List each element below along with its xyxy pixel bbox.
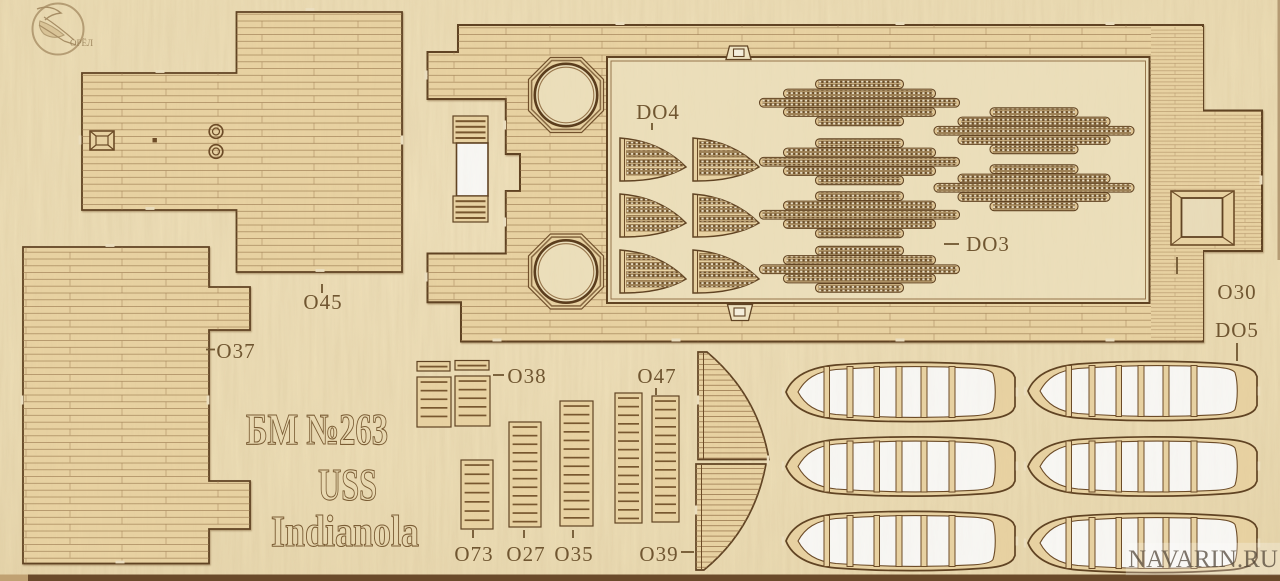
svg-text:NAVARIN.RU: NAVARIN.RU bbox=[1128, 546, 1278, 573]
